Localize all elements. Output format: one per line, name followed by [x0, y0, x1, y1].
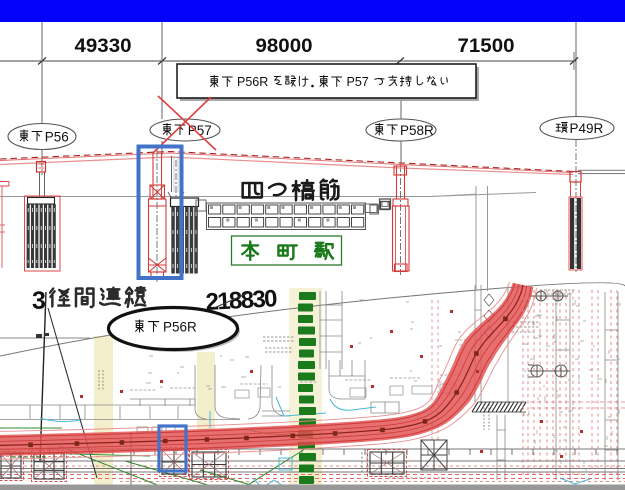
svg-text:P58R: P58R	[400, 123, 434, 138]
svg-text:71500: 71500	[458, 35, 515, 57]
svg-text:P56R: P56R	[163, 320, 197, 335]
svg-text:98000: 98000	[256, 35, 313, 57]
svg-text:3: 3	[32, 287, 46, 315]
svg-text:P57: P57	[347, 75, 369, 89]
svg-text:P56R: P56R	[237, 75, 268, 89]
svg-text:49330: 49330	[75, 35, 132, 57]
svg-text:P56: P56	[45, 129, 69, 144]
svg-text:P49R: P49R	[570, 121, 604, 136]
